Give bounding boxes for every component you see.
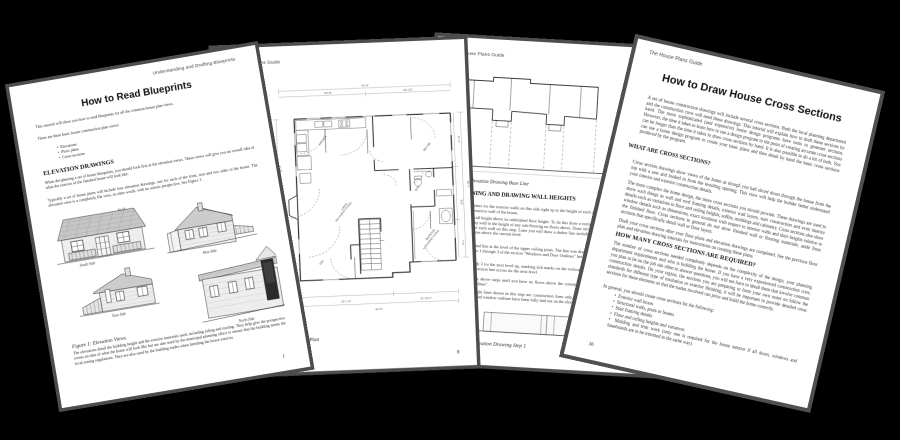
svg-text:KITCHEN: KITCHEN	[317, 135, 328, 146]
svg-text:South Side: South Side	[79, 261, 96, 268]
svg-text:21'-10 1": 21'-10 1"	[420, 296, 432, 300]
svg-text:BED RM: BED RM	[422, 142, 432, 152]
svg-text:26'-4": 26'-4"	[466, 180, 470, 187]
svg-text:41'-6": 41'-6"	[361, 84, 369, 88]
svg-text:41'-6": 41'-6"	[375, 307, 383, 311]
svg-text:DEN: DEN	[318, 259, 325, 266]
svg-text:East Side: East Side	[111, 312, 127, 319]
svg-text:20'-8": 20'-8"	[324, 91, 332, 95]
svg-text:12'-2": 12'-2"	[457, 136, 461, 143]
svg-text:20'-10": 20'-10"	[403, 88, 412, 92]
svg-text:West Side: West Side	[202, 249, 217, 255]
svg-text:9'-6": 9'-6"	[459, 200, 463, 206]
svg-text:7'-8": 7'-8"	[461, 240, 465, 246]
svg-text:20'-1 6": 20'-1 6"	[341, 299, 351, 303]
svg-text:13'-4": 13'-4"	[278, 165, 282, 172]
svg-text:RM CARPET FLRNG: RM CARPET FLRNG	[334, 201, 353, 222]
